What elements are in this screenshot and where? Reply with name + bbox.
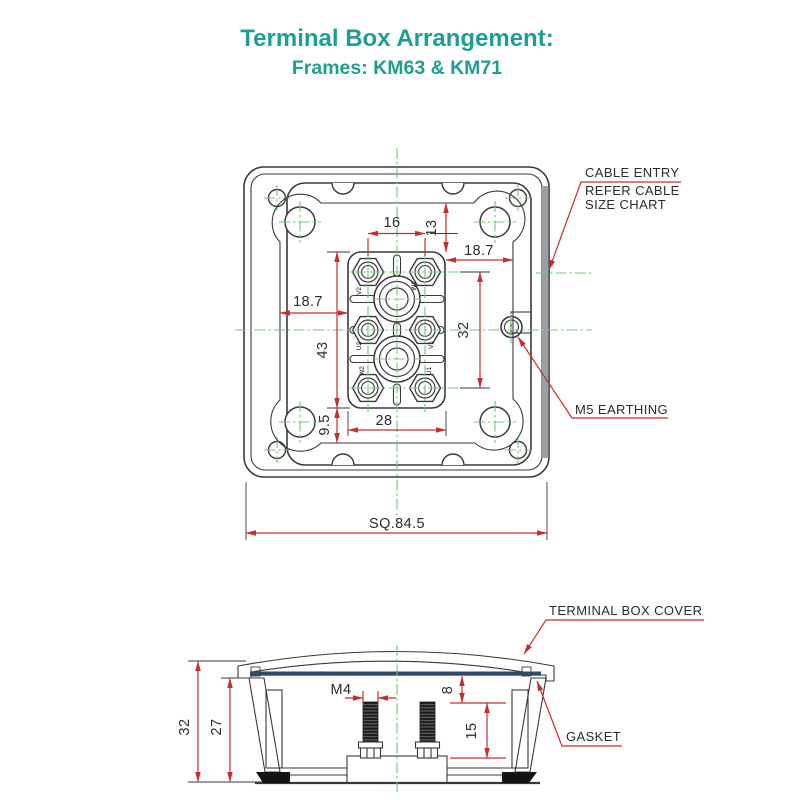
m5-earthing-label: M5 EARTHING [575,402,668,417]
dim-43: 43 [315,342,331,359]
side-view: 32 27 M4 8 15 TERMINAL BOX COVER GASKET [177,603,704,792]
dim-9-5: 9.5 [317,414,333,435]
dim-27-side: 27 [209,719,225,736]
page-subtitle: Frames: KM63 & KM71 [292,57,502,79]
cover-section [238,652,554,682]
cable-entry-label-line3: SIZE CHART [585,197,666,212]
cable-entry-label-line1: CABLE ENTRY [585,165,679,180]
cover-boss-bump [332,183,354,194]
dim-15: 15 [464,723,480,740]
earthing-boss [501,312,531,338]
terminal-label-v1: V1 [428,341,435,349]
cover-boss-bump [332,454,354,465]
cable-entry-face [542,186,549,458]
dim-sq-84-5: SQ.84.5 [369,516,425,532]
terminal-box-drawing-page: Terminal Box Arrangement: Frames: KM63 &… [0,0,800,800]
foot-pad-left [256,772,290,783]
cover-boss-bump [442,454,464,465]
cover-leader [524,620,704,654]
dimension-lines-side [198,661,506,782]
cover-boss-bump [442,183,464,194]
leader-lines-side [524,620,704,746]
dim-28: 28 [376,413,393,429]
page-title: Terminal Box Arrangement: [240,25,553,52]
dim-16: 16 [384,215,401,231]
dim-8: 8 [440,686,456,694]
terminal-label-u2: U2 [356,341,363,350]
extension-lines-side [188,661,262,782]
terminal-label-u1: U1 [426,366,433,375]
terminal-box-cover-label: TERMINAL BOX COVER [549,603,702,618]
m4-stud-right [416,702,440,758]
foot-pad-right [502,772,537,783]
top-view: V2 W1 U2 V1 W2 U1 [235,148,681,540]
cable-entry-label-line2: REFER CABLE [585,183,680,198]
m4-stud-left [359,702,383,758]
terminal-label-w1: W1 [411,281,418,291]
gasket-label: GASKET [566,729,621,744]
dim-18-7-left: 18.7 [293,294,323,310]
dim-m4: M4 [331,682,352,698]
dim-18-7-right: 18.7 [464,243,494,259]
drawing-canvas: Terminal Box Arrangement: Frames: KM63 &… [0,0,800,800]
terminal-label-v2: V2 [356,287,363,295]
title-block: Terminal Box Arrangement: Frames: KM63 &… [240,25,553,79]
terminal-label-w2: W2 [359,366,366,376]
dim-32-side: 32 [177,719,193,736]
dim-13: 13 [424,220,440,237]
dim-32: 32 [456,322,472,339]
